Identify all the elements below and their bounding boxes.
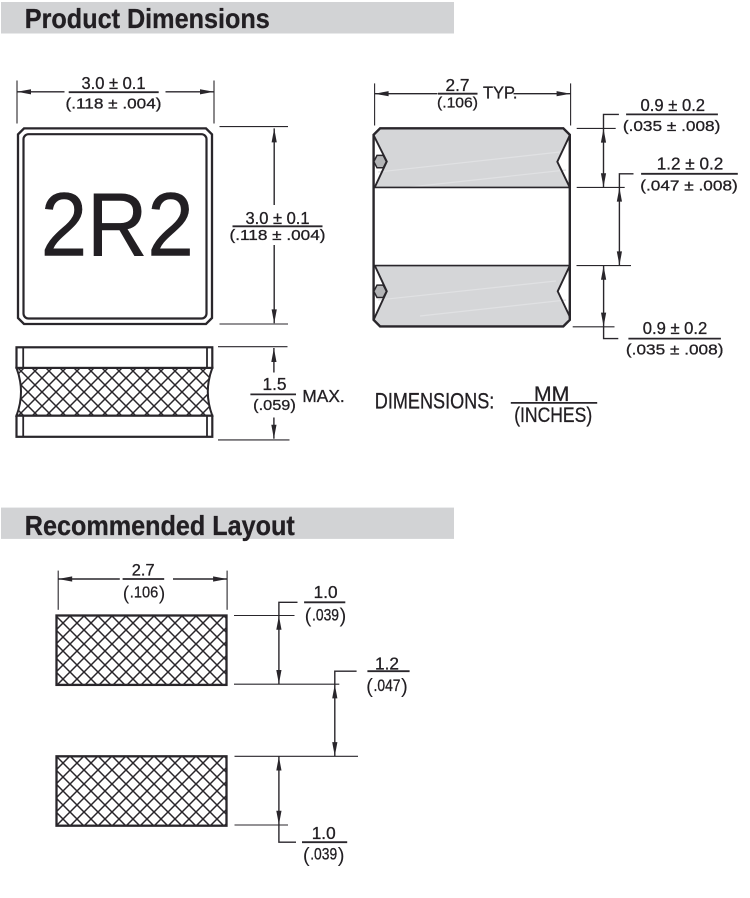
svg-text:MAX.: MAX.	[302, 386, 344, 406]
svg-text:): )	[340, 605, 347, 628]
svg-text:2.7: 2.7	[446, 75, 470, 95]
svg-text:(.035 ± .008): (.035 ± .008)	[623, 119, 721, 135]
svg-text:0.9 ± 0.2: 0.9 ± 0.2	[643, 318, 708, 338]
svg-text:3.0 ± 0.1: 3.0 ± 0.1	[246, 208, 310, 228]
svg-text:(.106): (.106)	[437, 96, 478, 112]
svg-text:(.035 ± .008): (.035 ± .008)	[626, 343, 724, 359]
svg-text:.039: .039	[312, 606, 339, 624]
svg-text:1.0: 1.0	[312, 823, 336, 843]
svg-text:1.2 ± 0.2: 1.2 ± 0.2	[657, 154, 724, 174]
svg-text:0.9 ± 0.2: 0.9 ± 0.2	[641, 95, 706, 115]
svg-text:(.047 ± .008): (.047 ± .008)	[640, 178, 738, 194]
svg-text:1.2: 1.2	[375, 653, 399, 673]
svg-text:): )	[338, 844, 345, 867]
svg-text:TYP.: TYP.	[483, 83, 518, 103]
svg-text:(: (	[303, 844, 310, 867]
svg-text:Recommended Layout: Recommended Layout	[25, 510, 295, 541]
svg-text:(INCHES): (INCHES)	[514, 404, 592, 427]
svg-text:(.118 ± .004): (.118 ± .004)	[230, 228, 326, 244]
svg-text:(: (	[305, 605, 312, 628]
svg-text:): )	[401, 675, 408, 698]
svg-text:(.059): (.059)	[253, 398, 296, 414]
svg-text:.039: .039	[310, 846, 337, 864]
svg-text:): )	[159, 583, 166, 605]
svg-text:(.118 ± .004): (.118 ± .004)	[66, 97, 162, 113]
svg-text:1.0: 1.0	[314, 582, 338, 602]
svg-text:Product Dimensions: Product Dimensions	[25, 3, 270, 34]
svg-text:(: (	[366, 675, 373, 698]
svg-text:(: (	[123, 583, 130, 605]
svg-text:2.7: 2.7	[132, 562, 155, 580]
svg-text:.106: .106	[130, 584, 159, 601]
svg-text:1.5: 1.5	[262, 374, 286, 394]
svg-text:3.0 ± 0.1: 3.0 ± 0.1	[82, 73, 146, 93]
svg-text:DIMENSIONS:: DIMENSIONS:	[375, 389, 495, 414]
svg-text:2R2: 2R2	[41, 176, 194, 276]
svg-text:.047: .047	[374, 677, 401, 695]
